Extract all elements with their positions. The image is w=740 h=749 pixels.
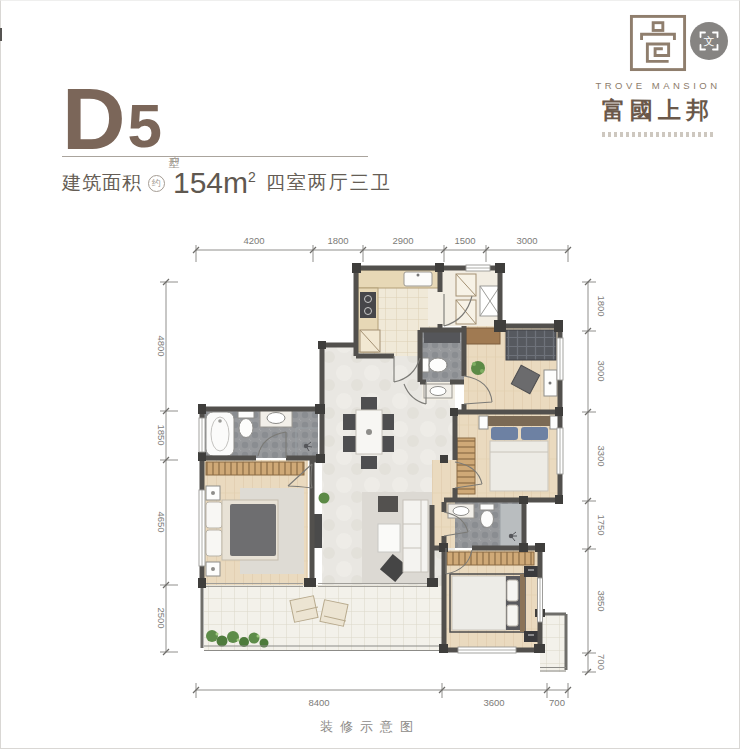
lounge-chair <box>290 596 318 623</box>
sofa <box>403 500 428 572</box>
dim-top-4: 1500 <box>454 235 475 246</box>
bed-headboard <box>488 416 550 426</box>
edge-mark <box>0 28 2 41</box>
daybed <box>506 330 556 360</box>
dim-left-2: 1850 <box>156 424 167 445</box>
wardrobe <box>206 462 304 475</box>
coffee-table <box>378 524 400 552</box>
translate-image-button[interactable]: 文 <box>690 22 728 60</box>
dim-top-3: 2900 <box>392 235 413 246</box>
lounge-chair <box>320 600 348 627</box>
pillow <box>507 605 518 626</box>
dim-bottom-2: 3600 <box>483 697 504 708</box>
dim-bottom-3: 700 <box>549 697 565 708</box>
dim-right-2: 3000 <box>596 360 607 381</box>
dim-top-2: 1800 <box>327 235 348 246</box>
bedroom3-furniture <box>446 552 538 642</box>
dim-top-1: 4200 <box>243 235 264 246</box>
translate-icon: 文 <box>697 29 721 53</box>
bathtub <box>206 412 234 456</box>
bed-throw <box>230 504 276 556</box>
dim-left-3: 4650 <box>156 511 167 532</box>
accent-chair <box>378 496 398 512</box>
translate-glyph: 文 <box>704 35 715 47</box>
wardrobe <box>446 552 534 565</box>
dim-right-3: 3300 <box>596 445 607 466</box>
bed-duvet <box>490 441 548 491</box>
pillow <box>206 502 222 528</box>
dim-right-5: 3850 <box>596 590 607 611</box>
plan-caption: 装修示意图 <box>0 718 740 736</box>
pillow <box>521 427 548 440</box>
dim-right-1: 1800 <box>596 295 607 316</box>
dim-left-4: 2500 <box>156 607 167 628</box>
dim-right-6: 700 <box>596 654 607 670</box>
dim-left-1: 4800 <box>156 335 167 356</box>
balcony-right-floor <box>540 614 566 672</box>
dim-top-5: 3000 <box>516 235 537 246</box>
dim-right-4: 1750 <box>596 514 607 535</box>
dim-bottom-1: 8400 <box>308 697 329 708</box>
floor-plan: 4200 1800 2900 1500 3000 4800 1850 4650 … <box>0 0 740 749</box>
sink <box>267 413 285 424</box>
pillow <box>206 530 222 556</box>
bath2-shower-floor <box>500 504 522 546</box>
bed-headboard <box>520 574 525 632</box>
bed-mattress <box>452 576 506 630</box>
pillow <box>507 580 518 601</box>
plant <box>319 493 330 504</box>
toilet <box>239 419 253 438</box>
pillow <box>491 427 518 440</box>
